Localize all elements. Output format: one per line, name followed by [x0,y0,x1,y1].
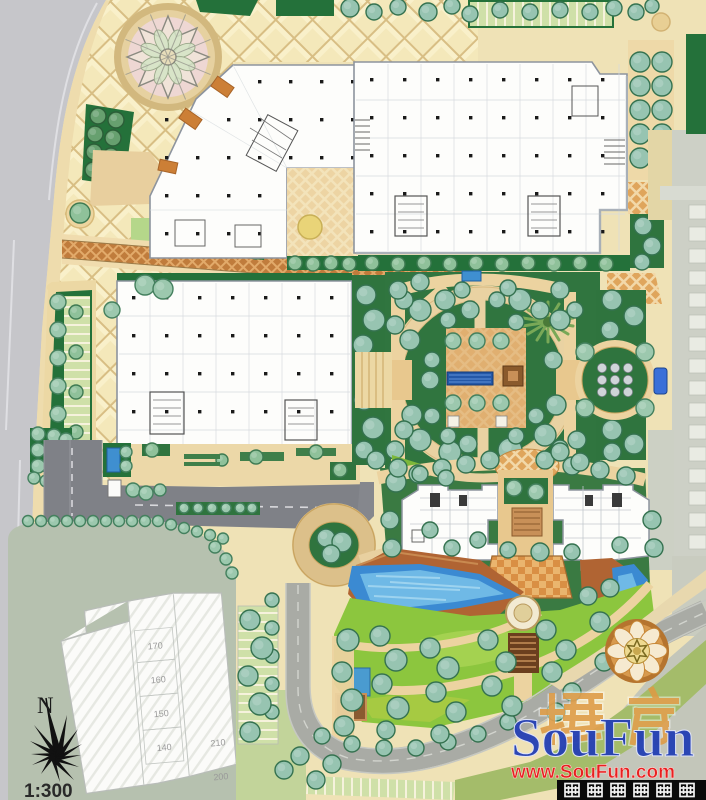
svg-text:170: 170 [147,640,163,651]
svg-text:1:300: 1:300 [24,781,73,800]
svg-text:150: 150 [153,708,169,719]
svg-text:210: 210 [210,737,226,748]
svg-text:140: 140 [156,742,172,753]
svg-text:200: 200 [213,771,229,782]
svg-text:SouFun: SouFun [511,707,694,768]
svg-text:160: 160 [150,674,166,685]
svg-text:N: N [37,693,54,718]
svg-text:www.SouFun.com: www.SouFun.com [510,762,675,783]
